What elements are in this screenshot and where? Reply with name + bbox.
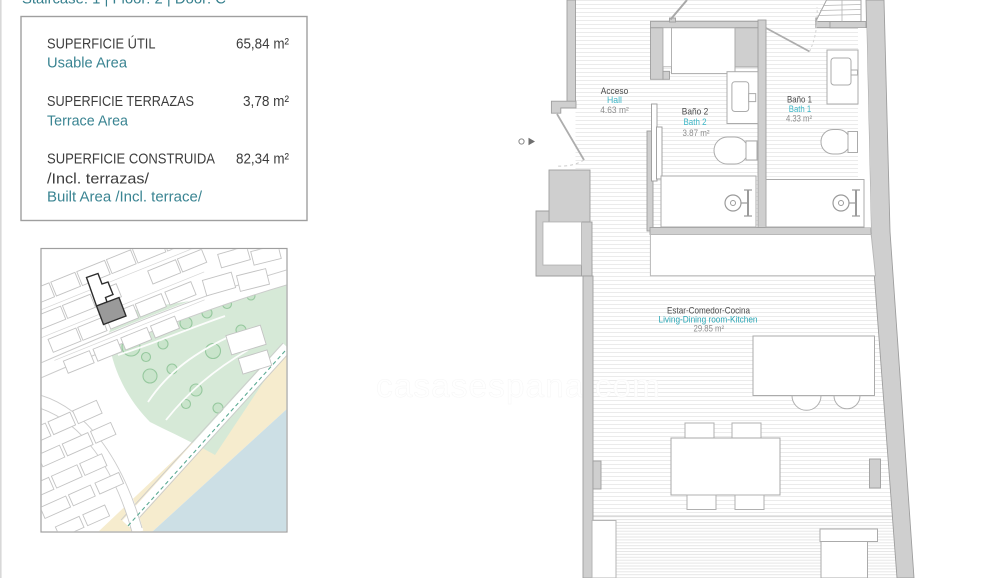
svg-text:SUPERFICIE ÚTIL: SUPERFICIE ÚTIL	[47, 36, 156, 53]
svg-text:Terrace Area: Terrace Area	[47, 113, 129, 130]
svg-text:Bath 2: Bath 2	[684, 117, 707, 128]
svg-text:Staircase: 1 | Floor: 2 | Door: Staircase: 1 | Floor: 2 | Door: C	[22, 0, 226, 8]
svg-text:Built Area /Incl. terrace/: Built Area /Incl. terrace/	[47, 189, 203, 206]
svg-text:4.33 m²: 4.33 m²	[786, 114, 812, 124]
svg-text:3.87 m²: 3.87 m²	[683, 128, 710, 138]
svg-text:/Incl. terrazas/: /Incl. terrazas/	[47, 171, 150, 188]
svg-text:82,34 m²: 82,34 m²	[236, 150, 289, 167]
svg-text:29.85 m²: 29.85 m²	[694, 324, 725, 334]
svg-text:4.63 m²: 4.63 m²	[600, 105, 629, 115]
svg-text:casasespana.com: casasespana.com	[376, 367, 661, 404]
svg-text:SUPERFICIE CONSTRUIDA: SUPERFICIE CONSTRUIDA	[47, 150, 215, 167]
svg-text:Baño 2: Baño 2	[682, 107, 709, 118]
svg-text:Usable Area: Usable Area	[47, 55, 128, 72]
svg-text:SUPERFICIE TERRAZAS: SUPERFICIE TERRAZAS	[47, 93, 194, 110]
svg-text:3,78 m²: 3,78 m²	[243, 93, 289, 110]
svg-text:65,84 m²: 65,84 m²	[236, 36, 289, 53]
